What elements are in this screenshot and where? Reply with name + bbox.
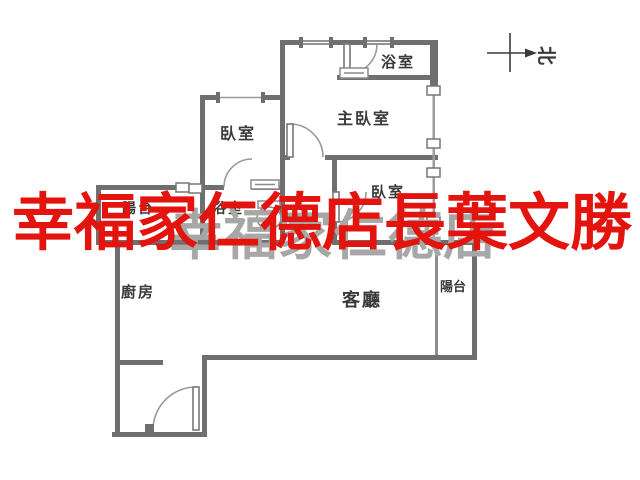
- room-label-master-bedroom: 主臥室: [337, 105, 391, 129]
- room-label-bathroom-top: 浴室: [381, 51, 415, 72]
- north-arrow-icon: [487, 33, 537, 72]
- room-label-balcony-right: 陽台: [440, 276, 466, 295]
- floorplan-page: 浴室 主臥室 臥室 臥室 陽台 浴室 廚房 客廳 陽台 北 幸福家仁德店 幸福家…: [0, 0, 640, 480]
- north-label: 北: [534, 46, 561, 65]
- room-label-living-room: 客廳: [342, 286, 382, 312]
- room-label-kitchen: 廚房: [121, 281, 155, 302]
- room-label-bedroom-left: 臥室: [220, 120, 256, 144]
- watermark-primary: 幸福家仁德店長葉文勝: [12, 193, 632, 255]
